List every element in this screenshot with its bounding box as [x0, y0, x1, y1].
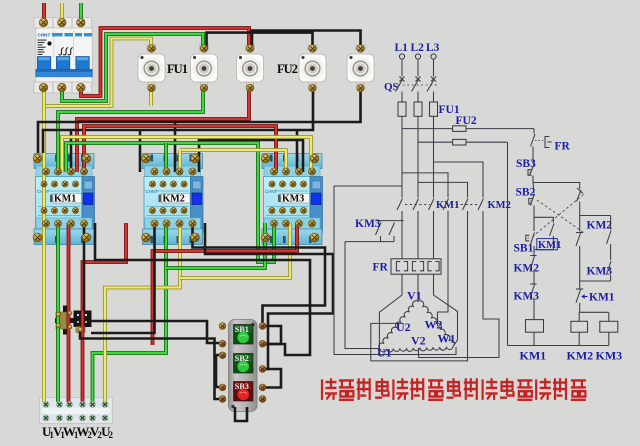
svg-text:KM3: KM3 [355, 218, 381, 230]
svg-text:KM1: KM1 [538, 240, 561, 251]
svg-text:KM1: KM1 [589, 292, 615, 304]
svg-text:L2: L2 [411, 42, 425, 54]
svg-text:KM2: KM2 [567, 349, 594, 363]
svg-text:FU1: FU1 [167, 62, 188, 76]
svg-text:U2: U2 [396, 320, 411, 334]
svg-text:W2: W2 [425, 318, 443, 332]
svg-text:QS: QS [384, 81, 399, 93]
svg-text:L1: L1 [395, 42, 409, 54]
svg-text:KM3: KM3 [596, 349, 623, 363]
svg-text:KM2: KM2 [514, 263, 540, 275]
svg-text:KM2: KM2 [587, 220, 613, 232]
svg-text:CHNT: CHNT [265, 189, 278, 194]
svg-text:KM2: KM2 [488, 200, 511, 211]
svg-text:SB3: SB3 [516, 158, 536, 170]
svg-text:V1: V1 [407, 289, 422, 303]
svg-text:FU2: FU2 [456, 115, 477, 127]
svg-text:SB2: SB2 [516, 187, 536, 199]
svg-text:KM2: KM2 [163, 194, 185, 205]
svg-text:U1: U1 [377, 346, 392, 360]
svg-text:U1 V1W1W2V2 U2: U1 V1W1W2V2 U2 [42, 424, 114, 440]
svg-text:FU2: FU2 [277, 62, 298, 76]
svg-text:FR: FR [373, 262, 389, 274]
svg-text:KM1: KM1 [520, 349, 547, 363]
svg-text:KM1: KM1 [54, 194, 76, 205]
svg-text:V2: V2 [411, 334, 426, 348]
svg-text:CHNT: CHNT [38, 33, 51, 38]
svg-text:KM3: KM3 [587, 266, 613, 278]
svg-text:FR: FR [555, 141, 571, 153]
svg-text:KM3: KM3 [282, 194, 304, 205]
svg-text:CHNT: CHNT [146, 189, 159, 194]
svg-text:KM3: KM3 [514, 291, 540, 303]
svg-text:KM1: KM1 [436, 200, 459, 211]
svg-text:W1: W1 [438, 332, 456, 346]
svg-text:L3: L3 [426, 42, 440, 54]
